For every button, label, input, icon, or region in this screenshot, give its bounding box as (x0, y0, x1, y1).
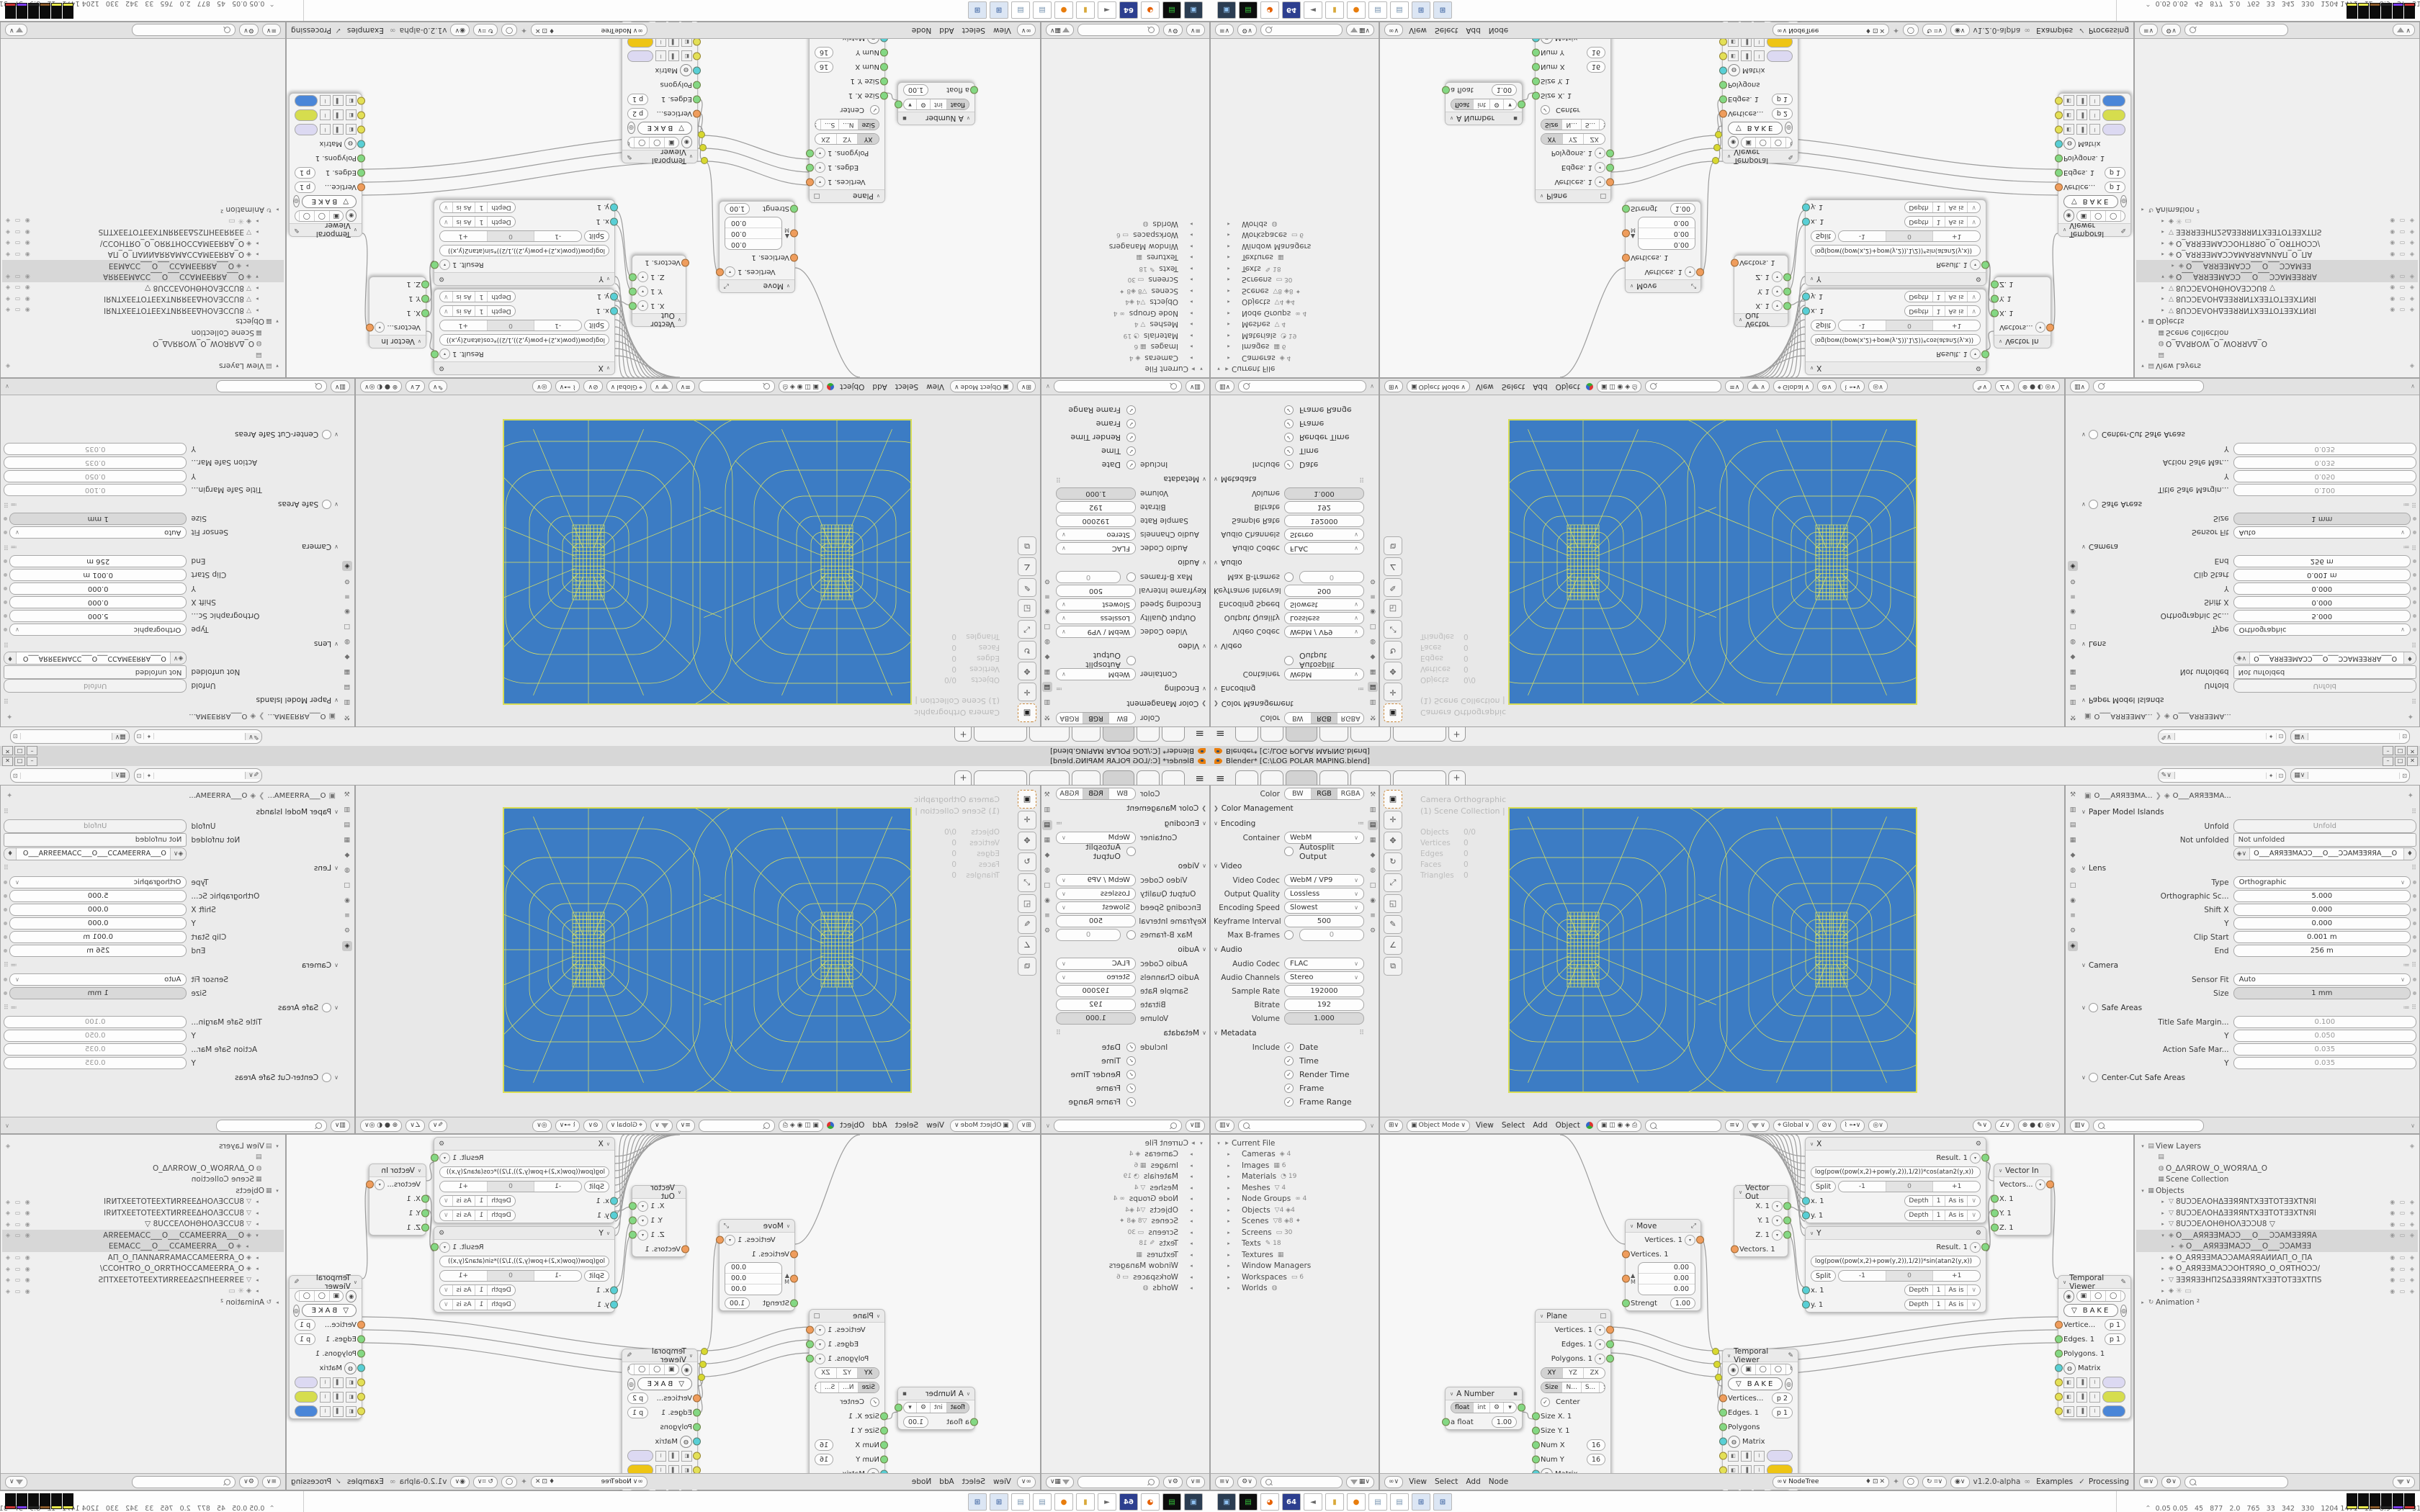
capsule-option-icon[interactable]: ⌇ (2089, 1392, 2100, 1403)
show-toggle-button[interactable]: ◉ (1728, 1364, 1739, 1376)
tree-row[interactable]: ▸▽8UƆƆEΛOHΔƎƎЯЯNTXƎƎTOTƎƎXTNЯI◉ ▭ ◈ (2, 294, 284, 305)
workspace-tab-1[interactable] (1235, 770, 1258, 785)
field-shift-x[interactable]: 0.000 (9, 904, 187, 916)
socket-green[interactable] (880, 63, 888, 71)
expand-arrow-icon[interactable]: ▸ (1188, 1241, 1195, 1246)
panel-header-encoding[interactable]: ∨Encoding≔ (1056, 681, 1206, 696)
viewport-tool-1[interactable]: ✛ (1384, 683, 1402, 701)
socket-menu-button[interactable]: ▾ (725, 267, 735, 278)
overlays-toggle[interactable]: ∠∨ (1995, 381, 2015, 393)
workspace-tab-1[interactable] (1162, 727, 1185, 742)
socket-cyan[interactable] (357, 1364, 365, 1372)
expand-arrow-icon[interactable]: ▸ (2159, 1255, 2166, 1261)
pin-icon[interactable]: ✦ (1893, 1477, 1899, 1486)
mode-dropdown[interactable]: ▣ Object Mode ∨ (950, 1120, 1013, 1132)
panel-header-color-management[interactable]: ❯Color Management (1214, 696, 1364, 711)
node-vector-out[interactable]: ∨Vector OutX. 1▾Y. 1▾Z. 1▾Vectors. 1 (632, 255, 686, 327)
checkbox-autosplit-output[interactable] (1284, 656, 1294, 665)
group-button-1[interactable]: int (1474, 99, 1490, 109)
socket-menu-button[interactable]: ▾ (2035, 323, 2045, 333)
shading-mode-buttons[interactable]: ⊕ ● ◐ ◎∨ (360, 381, 402, 393)
socket-yellow[interactable] (357, 1393, 365, 1401)
tree-row[interactable]: ▸▽8UƆƆEΛOHΔƎƎЯЯNTXƎƎTOTƎƎXTNЯI◉ ▭ ◈ (2136, 1197, 2418, 1208)
node-temporal-viewer-2[interactable]: ∨Temporal Viewer✎◉▣◯◯↻▽ BAKE◎Vertice...p… (289, 93, 362, 237)
maximize-button[interactable]: □ (2395, 757, 2406, 766)
properties-tab-icon-8[interactable]: ≡ (2068, 591, 2078, 601)
workspace-tab-2[interactable] (1260, 770, 1283, 785)
expand-arrow-icon[interactable]: ▾ (1198, 1140, 1205, 1146)
animate-dot[interactable] (2413, 935, 2416, 939)
socket-green[interactable] (1719, 96, 1727, 104)
properties-tab-icon-9[interactable]: ⚙ (1042, 576, 1052, 586)
properties-tab-icon-8[interactable]: ≡ (342, 591, 352, 601)
properties-tab-icon-4[interactable]: ◆ (1368, 652, 1378, 662)
close-button[interactable]: ✕ (2, 757, 13, 766)
filter-dropdown[interactable]: ∨ (1747, 381, 1770, 393)
properties-tab-icon-2[interactable]: ▤ (1368, 820, 1378, 830)
properties-tab-icon-2[interactable]: ▤ (2068, 820, 2078, 830)
toggle-option-rgba[interactable]: RGBA (1337, 713, 1363, 724)
properties-tab-icon-7[interactable]: ◉ (2068, 896, 2078, 906)
expand-arrow-icon[interactable]: ▸ (254, 229, 261, 235)
socket-green[interactable] (693, 81, 701, 89)
taskbar-icon-audio-volume[interactable]: ◄ (1304, 1493, 1322, 1511)
socket-green[interactable] (895, 101, 902, 109)
capsule-option-icon[interactable]: ⌇ (2089, 125, 2100, 135)
visibility-toggles[interactable]: ◉ ▭ ◈ (2390, 296, 2418, 302)
socket-cyan[interactable] (610, 293, 618, 301)
node-formula-x[interactable]: ∨X⚙Result. 1▾log(pow((pow(x,2)+pow(y,2))… (434, 289, 615, 375)
socket-orange[interactable] (806, 179, 814, 186)
socket-orange[interactable] (806, 1326, 814, 1334)
select-mode-buttons[interactable]: ▣ ◫ ◉ ◈ ⎙ (1597, 381, 1641, 393)
field-clip-start[interactable]: 0.001 m (9, 931, 187, 943)
collapse-icon[interactable]: ∨ (606, 1230, 610, 1236)
display-dropdown[interactable]: ≡∨ (1725, 1120, 1744, 1132)
image-thumbnail-5[interactable] (17, 3, 27, 19)
checkbox-frame[interactable]: ✓ (1284, 419, 1294, 428)
checkbox-time[interactable]: ✓ (1126, 1056, 1136, 1066)
display-dropdown[interactable]: ≡∨ (676, 381, 695, 393)
expand-arrow-icon[interactable]: ▸ (1225, 1241, 1232, 1246)
field-end[interactable]: 256 m (9, 555, 187, 567)
toggle-option-bw[interactable]: BW (1285, 788, 1312, 799)
tree-row[interactable]: ▸Texts✎ 18 (1212, 263, 1377, 274)
tree-row[interactable]: ▾▦Objects (2, 1185, 284, 1197)
expand-arrow-icon[interactable]: ▸ (2159, 229, 2166, 235)
outliner-search-input[interactable] (132, 24, 236, 37)
socket-menu-button[interactable]: ▾ (637, 1230, 648, 1241)
expand-arrow-icon[interactable]: ▾ (2139, 363, 2146, 369)
viewport-tool-5[interactable]: ◱ (1384, 894, 1402, 913)
split-button[interactable]: Split (584, 1270, 609, 1282)
menu-hamburger-icon[interactable]: ≡ (1216, 729, 1225, 739)
node-header[interactable]: ∨Temporal Viewer✎ (2058, 223, 2130, 236)
panel-header-paper-model-islands[interactable]: ∨Paper Model Islands⠿ (2081, 804, 2416, 819)
mode-transfer-icon[interactable] (1586, 1122, 1593, 1129)
editor-type-button[interactable]: ⊞∨ (1017, 1120, 1036, 1132)
field-max-b-frames[interactable]: 0 (1299, 929, 1364, 941)
group-button-3[interactable]: ▾ (1504, 99, 1516, 109)
checkbox[interactable] (1284, 930, 1294, 940)
properties-tab-icon-8[interactable]: ≡ (1368, 911, 1378, 921)
socket-orange[interactable] (1696, 269, 1704, 276)
button-unfold[interactable]: Unfold (2233, 819, 2416, 833)
socket-green[interactable] (1532, 1427, 1540, 1435)
workspace-tab-6[interactable] (974, 727, 1027, 742)
properties-tab-icon-4[interactable]: ◆ (1042, 652, 1052, 662)
visibility-toggles[interactable]: ◉ ▭ ◈ (2390, 240, 2418, 246)
node-formula-y[interactable]: ∨Y⚙Result. 1▾log(pow((pow(x,2)+pow(y,2))… (434, 1226, 615, 1313)
tree-row[interactable]: ▸▽ƎƎЯЯƎƎHΠ2SΔƎƎЯЯNTXƎƎTOTƎƎXTΠS◉ ▭ ◈ (2, 1274, 284, 1286)
maximize-button[interactable]: □ (2395, 747, 2406, 756)
expand-arrow-icon[interactable]: ▸ (2159, 1210, 2166, 1216)
fake-user-shield-icon[interactable]: ♦ (549, 1478, 555, 1485)
animate-dot[interactable] (2413, 881, 2416, 884)
group-button-0[interactable]: float (946, 99, 969, 109)
socket-menu-button[interactable]: ▾ (1595, 148, 1605, 159)
socket-menu-button[interactable]: ▾ (815, 1339, 825, 1350)
panel-extras-icon[interactable]: ⠿ (2411, 809, 2416, 816)
button-group[interactable]: SizeN...S...Si... (1541, 1382, 1605, 1393)
socket-menu-button[interactable]: ▾ (1970, 1242, 1981, 1253)
socket-yellow[interactable] (2055, 1379, 2063, 1387)
properties-tab-icon-3[interactable]: ▦ (2068, 835, 2078, 845)
tree-row[interactable]: ▸Screens▭ 30 (1212, 274, 1377, 286)
editor-type-button[interactable]: ∞∨ (1384, 1476, 1403, 1488)
socket-green[interactable] (806, 1355, 814, 1363)
depth-settings[interactable]: Depth1As is∨ (1904, 1284, 1981, 1296)
viewport-tool-6[interactable]: ✎ (1384, 578, 1402, 597)
image-thumbnail-6[interactable] (5, 1493, 16, 1509)
formula-field[interactable]: log(pow((pow(x,2)+pow(y,2)),1/2))*cos(at… (1811, 1166, 1981, 1178)
socket-green[interactable] (693, 1423, 701, 1431)
field-shift-x[interactable]: 0.000 (9, 596, 187, 608)
display-dropdown[interactable]: ≡∨ (676, 1120, 695, 1132)
copy-icon[interactable]: ⊡ (11, 773, 21, 779)
node-editor[interactable]: ∨A Number▪floatint⚙▾a float1.00∨Plane□Ve… (286, 1134, 1041, 1490)
socket-orange[interactable] (716, 1236, 724, 1244)
node-header[interactable]: ∨Plane□ (1536, 189, 1610, 202)
tree-row[interactable]: ▸Objects▽4 ◈4 (1043, 297, 1208, 308)
properties-tab-icon-7[interactable]: ◉ (342, 606, 352, 616)
capsule-option-icon[interactable]: ▐ (1741, 1451, 1752, 1462)
group-button-1[interactable]: YZ (836, 1368, 858, 1378)
expand-arrow-icon[interactable]: ▾ (274, 1143, 281, 1149)
viewport-search-input[interactable] (1645, 381, 1721, 393)
editor-type-button[interactable]: ⊞∨ (1017, 381, 1036, 393)
mode-transfer-icon[interactable] (1586, 383, 1593, 390)
menu-view[interactable]: View (1407, 1477, 1429, 1486)
properties-tab-icon-0[interactable]: ⚒ (1368, 790, 1378, 800)
display-mode-dropdown[interactable]: ≡∨ (2139, 1476, 2158, 1488)
processing-check-icon[interactable]: ✓ (2079, 26, 2085, 35)
expand-arrow-icon[interactable]: ▾ (1215, 1140, 1222, 1146)
display-mode-dropdown[interactable]: ≡∨ (1215, 1476, 1234, 1488)
expand-arrow-icon[interactable]: ▸ (254, 1277, 261, 1283)
panel-extras-icon[interactable]: ⠿ (1359, 476, 1364, 483)
collapse-icon[interactable]: ∨ (418, 1168, 421, 1174)
tree-row[interactable]: ▦Scene Collection (2136, 1174, 2418, 1186)
range-fields[interactable]: -10+1 (439, 320, 582, 331)
tree-row[interactable]: ▸Worlds◍ (1212, 1283, 1377, 1295)
capsule-option-icon[interactable]: ▐ (333, 1392, 344, 1403)
socket-green[interactable] (357, 1350, 365, 1358)
expand-arrow-icon[interactable]: ▸ (1225, 321, 1232, 327)
node-header[interactable]: ∨Temporal Viewer✎ (1723, 150, 1798, 163)
color-capsule[interactable] (295, 124, 318, 135)
tree-row[interactable]: ▸▽8UƆƆEΛOHΔƎƎЯЯNTXƎƎTOTƎƎXTNЯI◉ ▭ ◈ (2136, 294, 2418, 305)
properties-tab-icon-1[interactable]: ▥ (1042, 805, 1052, 815)
panel-extras-icon[interactable]: ≔ ⠿ (2403, 1004, 2416, 1012)
tree-row[interactable]: ◍O_ΔΛЯROW_O_WOЯЯΛΔ_O (2136, 1163, 2418, 1174)
socket-menu-button[interactable]: ▾ (2035, 1179, 2045, 1190)
properties-tab-icon-0[interactable]: ⚒ (2068, 712, 2078, 722)
taskbar-icon-save-64[interactable]: 64 (1282, 1, 1301, 19)
menu-add[interactable]: Add (870, 1121, 889, 1130)
capsule-option-icon[interactable]: ⌇ (2089, 110, 2100, 121)
panel-extras-icon[interactable]: ⠿ (4, 641, 9, 648)
expand-arrow-icon[interactable]: ▸ (1225, 1185, 1232, 1191)
checkbox-frame[interactable]: ✓ (1284, 1084, 1294, 1093)
tree-row[interactable]: ▸▽8UƆƆEΛOHΘHOΛƎƆƆU8 ▽◉ ▭ ◈ (2, 282, 284, 294)
socket-cyan[interactable] (610, 204, 618, 212)
node-a-number[interactable]: ∨A Number▪floatint⚙▾a float1.00 (897, 1387, 975, 1430)
animate-dot[interactable] (4, 517, 7, 521)
group-button-1[interactable]: N... (1562, 1382, 1581, 1392)
collapse-icon[interactable]: ∨ (1630, 1223, 1633, 1229)
workspace-tab-6[interactable] (974, 770, 1027, 785)
button-group[interactable]: XYYZZX (815, 133, 879, 145)
capsule-option-icon[interactable]: ▐ (333, 1406, 344, 1417)
collapse-icon[interactable]: ∨ (967, 1391, 970, 1397)
socket-menu-button[interactable]: ▾ (1595, 177, 1605, 188)
reroute-node[interactable] (1712, 1348, 1719, 1355)
field-volume[interactable]: 1.000 (1056, 487, 1136, 500)
properties-search-input[interactable] (1054, 381, 1182, 393)
animate-dot[interactable] (4, 949, 7, 953)
properties-tab-icon-2[interactable]: ▤ (342, 820, 352, 830)
taskbar-icon-blender[interactable]: ● (1347, 1, 1366, 19)
group-button-1[interactable]: N... (838, 120, 857, 130)
group-button-1[interactable]: int (1474, 1403, 1490, 1413)
expand-arrow-icon[interactable]: ▸ (1188, 1174, 1195, 1179)
taskbar-icon-text-editor-2[interactable]: ▤ (1390, 1, 1409, 19)
socket-green[interactable] (880, 1427, 888, 1435)
render-visibility-icon[interactable]: ◈ (2, 363, 10, 369)
properties-tab-icon-6[interactable]: □ (1042, 881, 1052, 891)
group-button-3[interactable]: Si... (815, 120, 820, 130)
node-formula-x[interactable]: ∨X⚙Result. 1▾log(pow((pow(x,2)+pow(y,2))… (434, 1137, 615, 1223)
taskbar-icon-file-manager[interactable]: ▮ (1325, 1493, 1344, 1511)
copy-icon[interactable]: ⊡ (11, 734, 21, 740)
image-thumbnail-1[interactable] (2347, 1493, 2357, 1509)
socket-green[interactable] (1606, 150, 1614, 158)
checkbox-frame-range[interactable]: ✓ (1284, 1097, 1294, 1107)
image-datablock-selector[interactable]: ▦∨ ⊡ (10, 768, 130, 783)
capsule-option-icon[interactable]: ⌇ (320, 1392, 331, 1403)
node-header[interactable]: ∨Temporal Viewer✎ (1723, 1349, 1798, 1362)
chevron-down-icon[interactable]: ∨ (2411, 384, 2415, 390)
breadcrumb-data[interactable]: O___AЯЯƎƎMA... (189, 792, 247, 800)
field-volume[interactable]: 1.000 (1056, 1012, 1136, 1025)
dropdown-encoding-speed[interactable]: Slowest∨ (1284, 598, 1364, 611)
socket-menu-button[interactable]: ▾ (815, 148, 825, 159)
capsule-option-icon[interactable]: ▐ (2076, 125, 2087, 135)
value-field[interactable]: p 1 (295, 167, 315, 179)
socket-green[interactable] (357, 155, 365, 163)
expand-arrow-icon[interactable]: ▸ (1188, 1285, 1195, 1291)
depth-settings[interactable]: Depth1As is∨ (439, 1284, 516, 1296)
properties-tab-icon-4[interactable]: ◆ (2068, 652, 2078, 662)
panel-header-audio[interactable]: ∨Audio (1214, 555, 1364, 570)
transform-orientation-dropdown[interactable]: ⌖ Global ∨ (606, 1120, 647, 1132)
viewport-tool-3[interactable]: ↻ (1384, 641, 1402, 660)
tree-row[interactable]: ▸Meshes▽ 4 (1212, 1182, 1377, 1194)
viewport-tool-3[interactable]: ↻ (1384, 852, 1402, 871)
group-button-2[interactable]: ⚙ (916, 1403, 930, 1413)
panel-extras-icon[interactable]: ≔ ⠿ (4, 544, 17, 551)
dropdown-output-quality[interactable]: Lossless∨ (1284, 612, 1364, 624)
tree-row[interactable]: ▸Objects▽4 ◈4 (1212, 297, 1377, 308)
panel-header-metadata[interactable]: ∨Metadata⠿ (1214, 1025, 1364, 1040)
group-button-2[interactable]: ⚙ (1490, 1403, 1504, 1413)
socket-green[interactable] (1532, 49, 1540, 57)
socket-green[interactable] (357, 1336, 365, 1344)
editor-type-button[interactable]: ∞∨ (1017, 1476, 1036, 1488)
visibility-toggles[interactable]: ◉ ▭ ◈ (2390, 1210, 2418, 1216)
menu-add[interactable]: Add (1531, 382, 1549, 391)
snap-toggle[interactable]: ⌇ ⊶∨ (555, 381, 581, 393)
checkbox-autosplit-output[interactable] (1126, 847, 1136, 856)
menu-hamburger-icon[interactable]: ≡ (1216, 773, 1225, 783)
field-bitrate[interactable]: 192 (1284, 501, 1364, 513)
properties-tab-icon-10[interactable]: ◈ (2068, 561, 2078, 571)
socket-green[interactable] (1981, 351, 1989, 359)
expand-arrow-icon[interactable]: ▸ (254, 251, 261, 257)
visibility-toggles[interactable]: ◉ ▭ ◈ (2390, 307, 2418, 313)
panel-extras-icon[interactable]: ≔ ⠿ (4, 501, 17, 508)
visibility-toggles[interactable]: ◉ ▭ ◈ (2390, 1221, 2418, 1228)
toggle-group[interactable]: BWRGBRGBA (1056, 788, 1136, 800)
expand-arrow-icon[interactable]: ▸ (1225, 1151, 1232, 1157)
node-vector-out[interactable]: ∨Vector OutX. 1▾Y. 1▾Z. 1▾Vectors. 1 (1734, 255, 1788, 327)
unlink-icon[interactable]: ✕ (1880, 27, 1886, 34)
socket-green[interactable] (2055, 1336, 2063, 1344)
tree-row[interactable]: ▸Meshes▽ 4 (1212, 319, 1377, 330)
socket-cyan[interactable] (1802, 1197, 1810, 1205)
viewport-tool-0[interactable]: ▣ (1018, 703, 1036, 722)
editor-type-button[interactable]: ⊞∨ (1384, 1120, 1403, 1132)
update-button[interactable]: ◯ (1903, 24, 1919, 37)
copy-icon[interactable]: ⊡ (2399, 734, 2409, 740)
node-header[interactable]: ∨Vector Out (1734, 1186, 1788, 1199)
group-button-2[interactable]: ZX (1584, 1368, 1605, 1378)
socket-cyan[interactable] (610, 1212, 618, 1220)
image-thumbnail-3[interactable] (2370, 3, 2380, 19)
collapse-icon[interactable]: ∨ (354, 228, 357, 233)
expand-arrow-icon[interactable]: ▸ (254, 296, 261, 302)
node-plane[interactable]: ∨Plane□Vertices. 1▾Edges. 1▾Polygons. 1▾… (1535, 30, 1611, 203)
checkbox-date[interactable]: ✓ (1126, 460, 1136, 469)
node-vector-in[interactable]: ∨Vector InVectors...▾X. 1Y. 1Z. 1 (1994, 1164, 2051, 1236)
bake-button[interactable]: ▽ BAKE (637, 1377, 692, 1390)
workspace-tab-1[interactable] (1162, 770, 1185, 785)
bake-all-button[interactable]: ◉∨ (451, 1476, 470, 1488)
capsule-option-icon[interactable]: ▐ (2076, 110, 2087, 121)
socket-menu-button[interactable]: ▾ (725, 1235, 735, 1246)
capsule-option-icon[interactable]: ⌇ (2089, 96, 2100, 107)
expand-arrow-icon[interactable]: ▸ (1225, 1263, 1232, 1269)
socket-green[interactable] (1442, 86, 1450, 94)
formula-field[interactable]: log(pow((pow(x,2)+pow(y,2)),1/2))*sin(at… (1811, 1256, 1981, 1267)
tree-row[interactable]: ▸Textures▦ (1212, 252, 1377, 264)
animate-dot[interactable] (4, 573, 7, 577)
rebake-icon-button[interactable]: ◎ (1785, 122, 1793, 135)
socket-yellow[interactable] (693, 53, 701, 60)
rebake-icon-button[interactable]: ◎ (293, 1305, 300, 1317)
collapse-icon[interactable]: ∨ (606, 1141, 610, 1147)
field-max-b-frames[interactable]: 0 (1299, 571, 1364, 583)
tree-row[interactable]: ▸Objects▽4 ◈4 (1043, 1205, 1208, 1216)
expand-arrow-icon[interactable]: ▾ (2159, 274, 2166, 279)
field-clip-start[interactable]: 0.001 m (9, 569, 187, 581)
shading-mode-buttons[interactable]: ⊕ ● ◐ ◎∨ (2018, 1120, 2060, 1132)
properties-tab-icon-3[interactable]: ▦ (1368, 835, 1378, 845)
pin-icon[interactable]: ✦ (2408, 713, 2414, 721)
properties-tab-icon-7[interactable]: ◉ (342, 896, 352, 906)
image-thumbnail-6[interactable] (2404, 3, 2415, 19)
capsule-option-icon[interactable]: ⌇ (655, 1451, 666, 1462)
button-group[interactable]: SizeN...S...Si... (815, 1382, 879, 1393)
panel-header-center-cut-safe-areas[interactable]: ∨Center-Cut Safe Areas (2081, 1070, 2416, 1085)
animate-dot[interactable] (2413, 614, 2416, 618)
socket-yellow[interactable] (1719, 53, 1727, 60)
socket-cyan[interactable] (610, 1301, 618, 1309)
tree-row[interactable]: ▸◈✳ ▭◉ ▭ ◈ (2, 215, 284, 227)
filter-dropdown[interactable]: ∨ (650, 381, 673, 393)
tree-row[interactable]: ▸◈O_AЯЯƎƎMAƆƆOHTЯЯO_O_OЯTHOƆƆ/◉ ▭ ◈ (2, 238, 284, 249)
node-temporal-viewer-2[interactable]: ∨Temporal Viewer✎◉▣◯◯↻▽ BAKE◎Vertice...p… (289, 1275, 362, 1419)
visibility-toggles[interactable]: ◉ ▭ ◈ (2390, 284, 2418, 291)
expand-arrow-icon[interactable]: ▸ (274, 1300, 281, 1305)
panel-extras-icon[interactable]: ⠿ (2411, 641, 2416, 648)
expand-arrow-icon[interactable]: ▸ (1188, 1274, 1195, 1280)
filter-button[interactable]: ∨ (2393, 1476, 2415, 1488)
properties-tab-icon-6[interactable]: □ (1368, 881, 1378, 891)
socket-orange[interactable] (366, 324, 374, 332)
panel-checkbox[interactable] (2089, 500, 2098, 509)
depth-settings[interactable]: Depth1As is∨ (439, 202, 516, 213)
copy-icon[interactable]: ⊡ (135, 734, 145, 740)
properties-tab-icon-5[interactable]: ◍ (1368, 865, 1378, 876)
value-field[interactable]: p 2 (1772, 108, 1793, 120)
tree-row[interactable]: ▸Textures▦ (1043, 252, 1208, 264)
socket-menu-button[interactable]: ▾ (815, 1354, 825, 1364)
viewport-tool-0[interactable]: ▣ (1018, 790, 1036, 809)
socket-green[interactable] (1991, 1210, 1999, 1218)
tree-row[interactable]: ▸Cameras◈ 4 (1043, 1149, 1208, 1161)
tree-row[interactable]: ▸▽ƎƎЯЯƎƎHΠ2SΔƎƎЯЯNTXƎƎTOTƎƎXTΠS◉ ▭ ◈ (2136, 227, 2418, 238)
group-button-1[interactable]: YZ (1563, 134, 1585, 144)
toggle-option-rgb[interactable]: RGB (1312, 713, 1338, 724)
menu-hamburger-icon[interactable]: ≡ (1195, 729, 1204, 739)
pin-icon[interactable]: ✦ (2266, 773, 2276, 779)
panel-extras-icon[interactable]: ⠿ (1056, 476, 1061, 483)
field-sample-rate[interactable]: 192000 (1056, 515, 1136, 527)
socket-menu-button[interactable]: ▾ (637, 301, 648, 312)
group-button-2[interactable]: ZX (815, 1368, 836, 1378)
